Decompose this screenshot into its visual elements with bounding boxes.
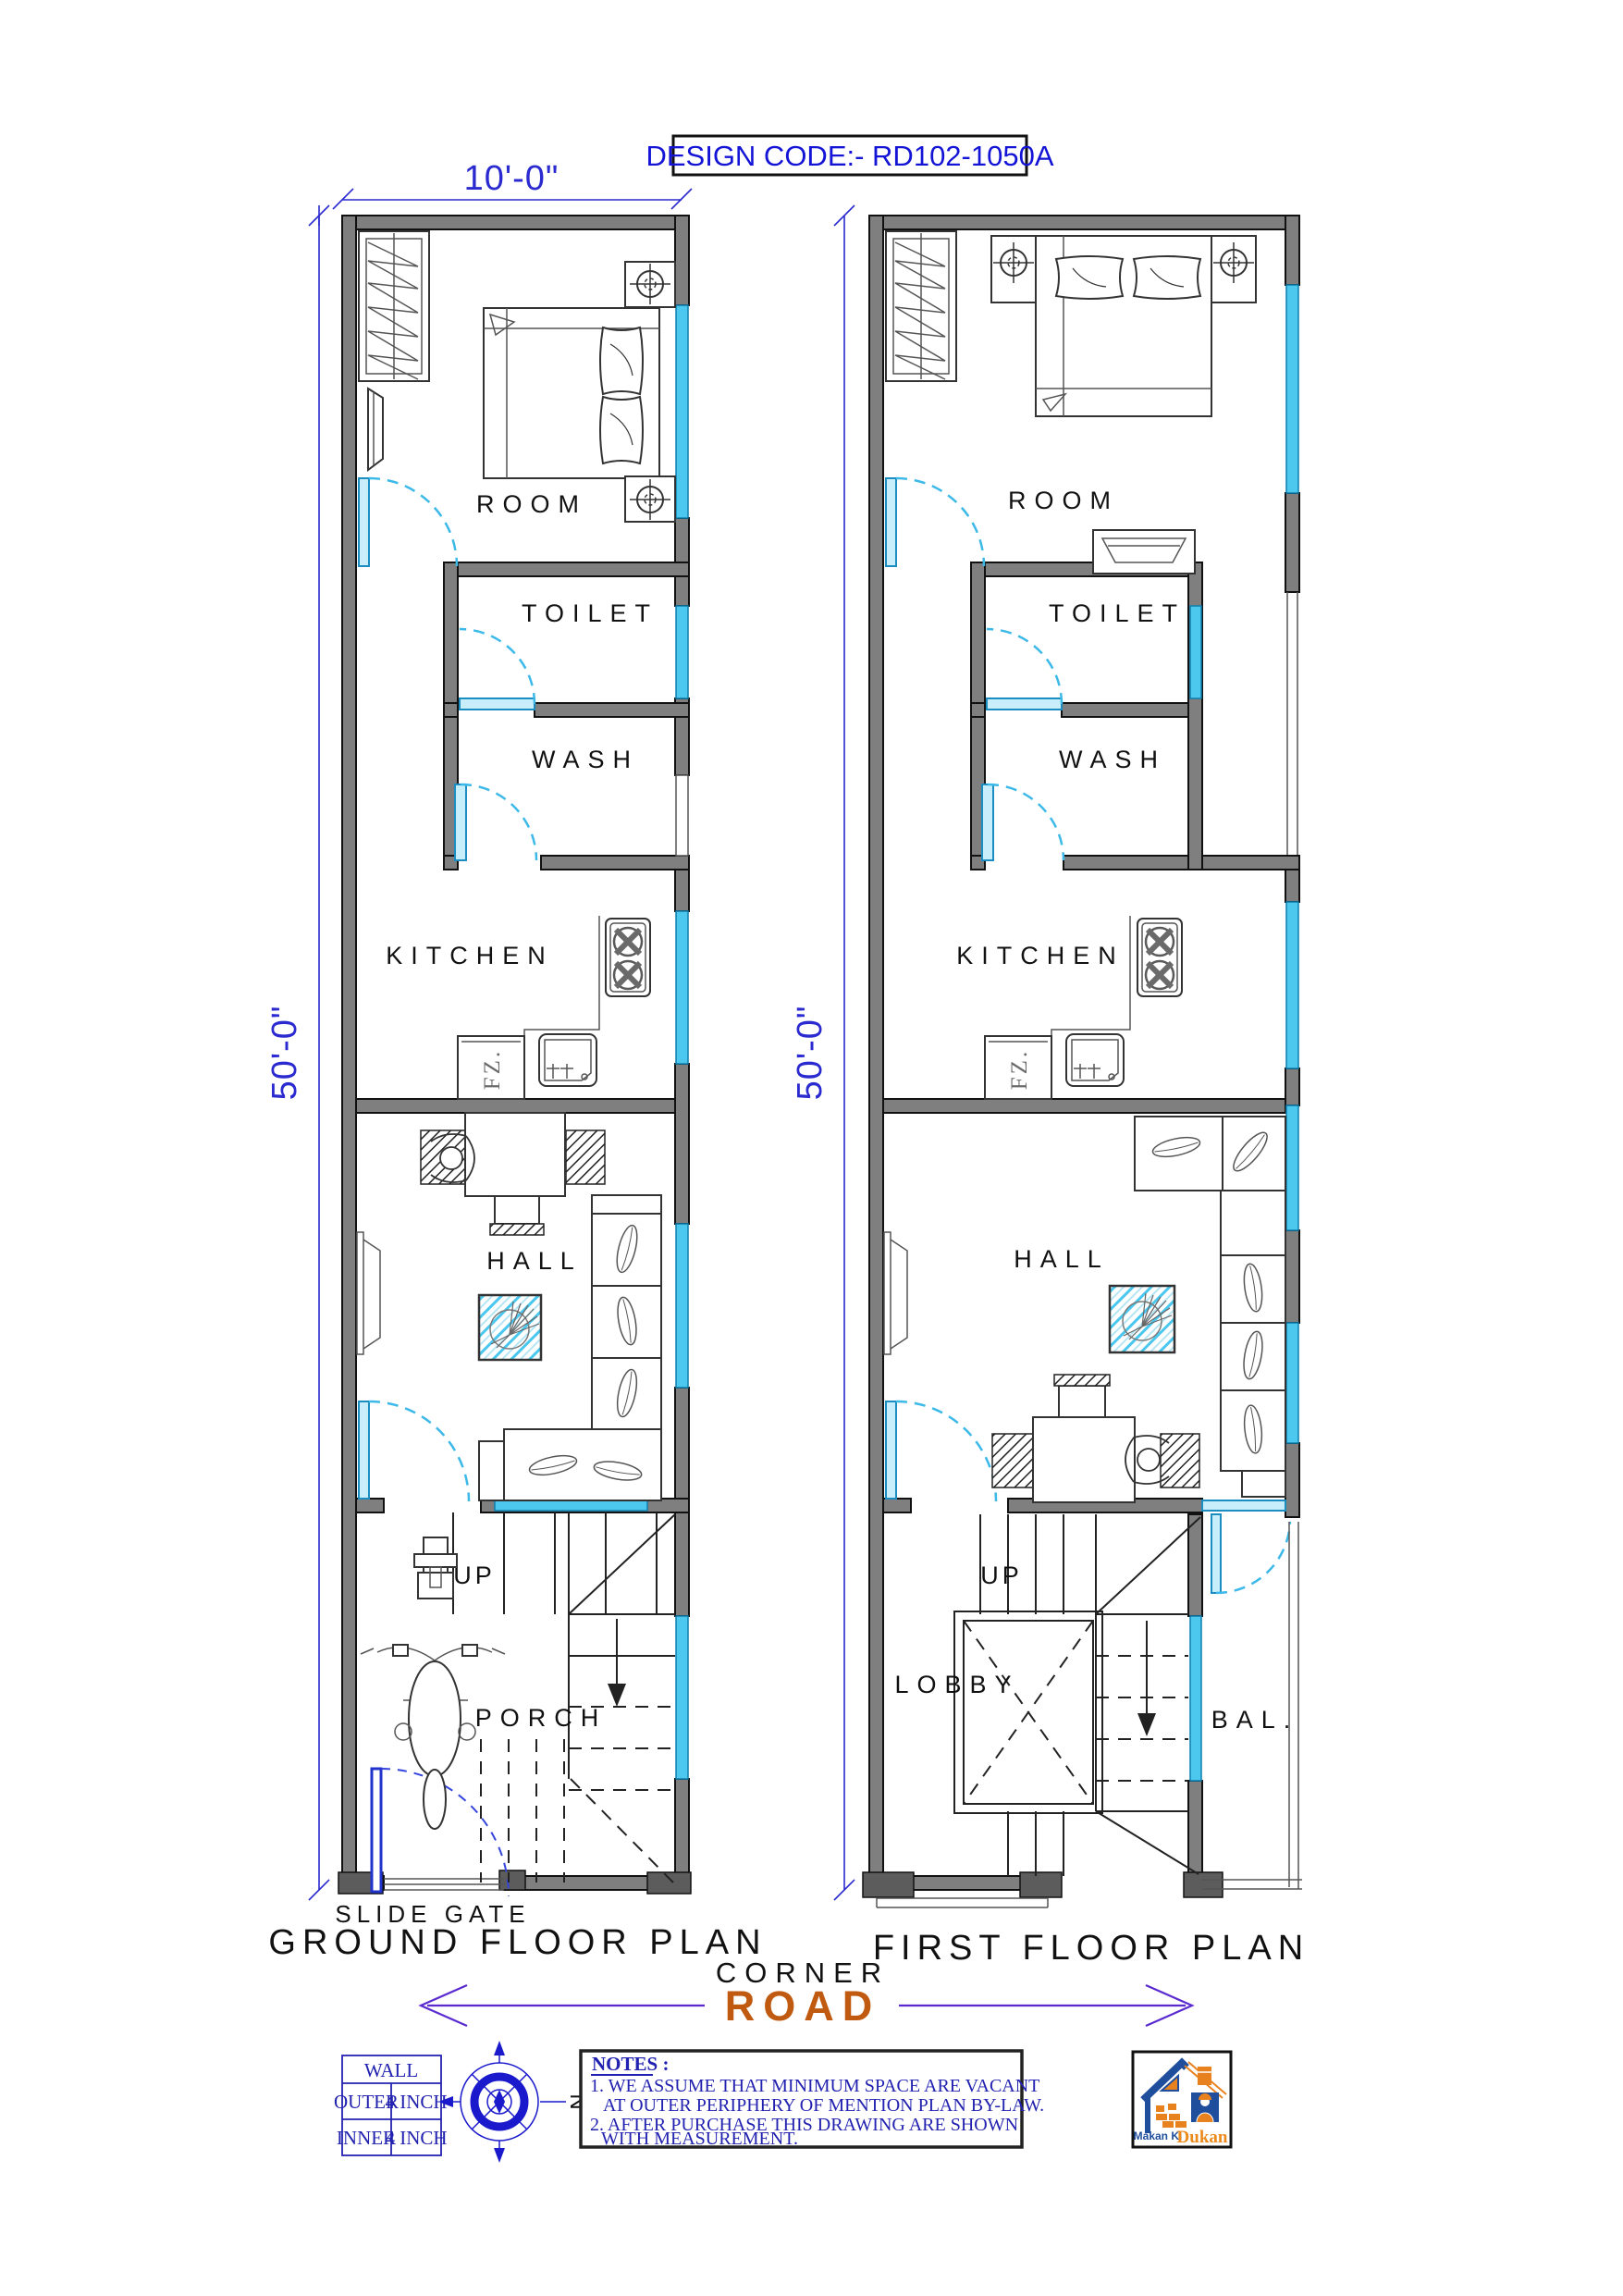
ff-bed-icon [1036, 236, 1211, 416]
ff-dining-set [992, 1375, 1199, 1502]
logo-text-bottom: Dukan [1177, 2128, 1228, 2147]
ground-height-dim: 50'-0" [265, 1006, 304, 1101]
gf-stairs: UP [453, 1512, 675, 1882]
first-height-dim: 50'-0" [791, 1006, 830, 1101]
gf-wardrobe-icon [359, 231, 429, 381]
gf-hall-label: HALL [486, 1247, 583, 1275]
wall-legend-table: WALL OUTER 4 INCH INNER 4 INCH [334, 2055, 448, 2155]
ff-lobby-void [954, 1611, 1102, 1813]
gf-toilet-label: TOILET [522, 599, 658, 627]
ff-room-label: ROOM [1008, 487, 1119, 514]
gf-porch-label: PORCH [475, 1704, 608, 1732]
ff-kitchen-label: KITCHEN [956, 942, 1125, 969]
ff-freezer-label: FZ. [1007, 1049, 1032, 1090]
gf-wash-label: WASH [532, 746, 639, 773]
wall-outer-size: 4 INCH [385, 2091, 447, 2113]
gf-room-label: ROOM [476, 490, 587, 518]
notes-box: NOTES : 1. WE ASSUME THAT MINIMUM SPACE … [581, 2051, 1044, 2149]
ff-center-table-icon [1110, 1286, 1174, 1352]
ff-tv-icon [884, 1232, 907, 1354]
ff-wash-label: WASH [1059, 746, 1166, 773]
gf-hall-furniture [357, 1195, 661, 1500]
gf-freezer-label: FZ. [480, 1049, 505, 1090]
ff-lobby-label: LOBBY [894, 1671, 1019, 1698]
ff-title: FIRST FLOOR PLAN [873, 1929, 1309, 1968]
floor-plan-sheet: DESIGN CODE:- RD102-1050A 10'-0" 50'-0" … [0, 0, 1623, 2296]
gf-bedroom-furniture [359, 231, 675, 522]
gf-slide-gate-leaf [372, 1769, 381, 1892]
ff-hall-label: HALL [1014, 1245, 1110, 1273]
gf-up-label: UP [453, 1562, 496, 1589]
gf-tv-icon [357, 1232, 380, 1354]
plot-width-dim: 10'-0" [464, 159, 559, 198]
ff-balcony-label: BAL. [1211, 1706, 1299, 1734]
gf-mirror-icon [368, 389, 383, 470]
wall-table-header: WALL [364, 2059, 418, 2081]
design-code-box: DESIGN CODE:- RD102-1050A [646, 136, 1053, 175]
gf-sink-icon [539, 1034, 596, 1086]
gf-dining-set [421, 1113, 605, 1235]
gf-bed-icon [484, 308, 659, 478]
gf-stove-icon [606, 919, 650, 996]
gf-center-table-icon [479, 1295, 541, 1360]
notes-line-2: AT OUTER PERIPHERY OF MENTION PLAN BY-LA… [603, 2095, 1044, 2116]
ff-hall-furniture [884, 1117, 1285, 1502]
ff-up-label: UP [980, 1562, 1023, 1589]
gf-windows [384, 305, 688, 1890]
logo-text-top: Makan Ki [1134, 2129, 1183, 2142]
ff-sink-icon [1066, 1034, 1124, 1086]
gf-fridge-icon: FZ. [458, 1036, 524, 1099]
ff-dresser-icon [1093, 530, 1195, 574]
ff-windows [1190, 285, 1298, 1781]
ff-fridge-icon: FZ. [985, 1036, 1051, 1099]
ff-stove-icon [1137, 919, 1182, 996]
gf-title: GROUND FLOOR PLAN [268, 1923, 767, 1962]
design-code-text: DESIGN CODE:- RD102-1050A [646, 140, 1053, 172]
ff-toilet-label: TOILET [1049, 599, 1186, 627]
gf-kitchen-label: KITCHEN [386, 942, 554, 969]
ff-wardrobe-icon [886, 231, 956, 381]
wall-inner-size: 4 INCH [385, 2127, 447, 2149]
first-floor-plan: FZ. [863, 216, 1309, 1968]
ground-floor-plan: FZ. [268, 216, 767, 1962]
notes-line-1: 1. WE ASSUME THAT MINIMUM SPACE ARE VACA… [590, 2076, 1039, 2096]
ff-bedroom-furniture [886, 231, 1256, 574]
notes-heading: NOTES : [592, 2053, 669, 2075]
brand-logo: Makan Ki Dukan [1133, 2052, 1231, 2147]
floor-plan-drawing: DESIGN CODE:- RD102-1050A 10'-0" 50'-0" … [0, 0, 1623, 2296]
road-label: ROAD [725, 1982, 881, 2030]
notes-line-4: WITH MEASUREMENT. [601, 2129, 798, 2149]
